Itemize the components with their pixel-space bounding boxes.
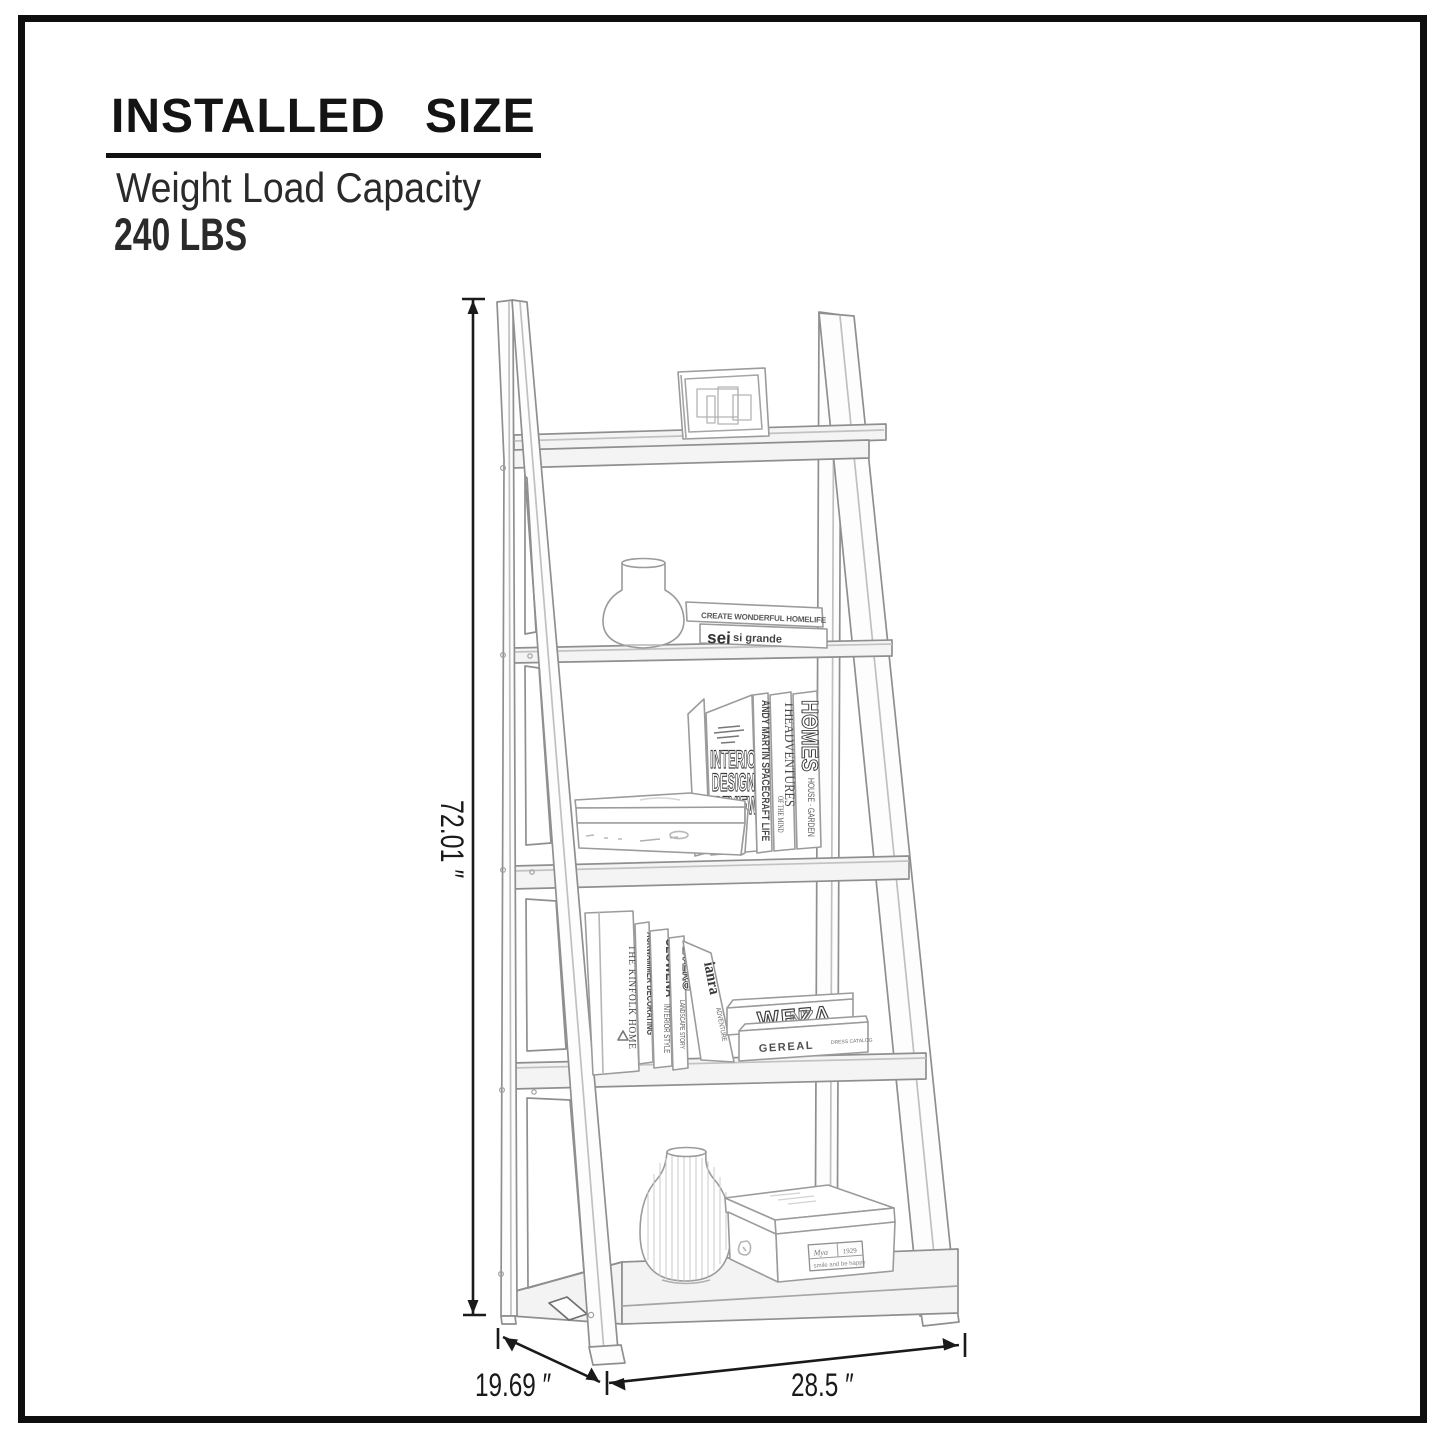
svg-text:HӨMES: HӨMES [797, 700, 823, 772]
svg-text:OF THE MIND: OF THE MIND [776, 796, 785, 833]
svg-text:1929: 1929 [842, 1247, 857, 1256]
svg-text:28.5 ″: 28.5 ″ [791, 1368, 854, 1404]
svg-text:72.01 ″: 72.01 ″ [433, 800, 469, 878]
svg-text:si grande: si grande [733, 632, 782, 646]
svg-text:HOUSE · GARDEN: HOUSE · GARDEN [806, 778, 816, 837]
svg-text:sei: sei [707, 628, 731, 648]
svg-text:INTERIOR STYLE: INTERIOR STYLE [662, 1004, 670, 1054]
svg-text:LANDSCAPE STORY: LANDSCAPE STORY [678, 1000, 686, 1049]
svg-text:19.69 ″: 19.69 ″ [475, 1368, 551, 1404]
svg-text:ANDY MARTIN SPACECRAFT LIFE: ANDY MARTIN SPACECRAFT LIFE [759, 700, 771, 842]
svg-text:Mya: Mya [812, 1248, 828, 1258]
